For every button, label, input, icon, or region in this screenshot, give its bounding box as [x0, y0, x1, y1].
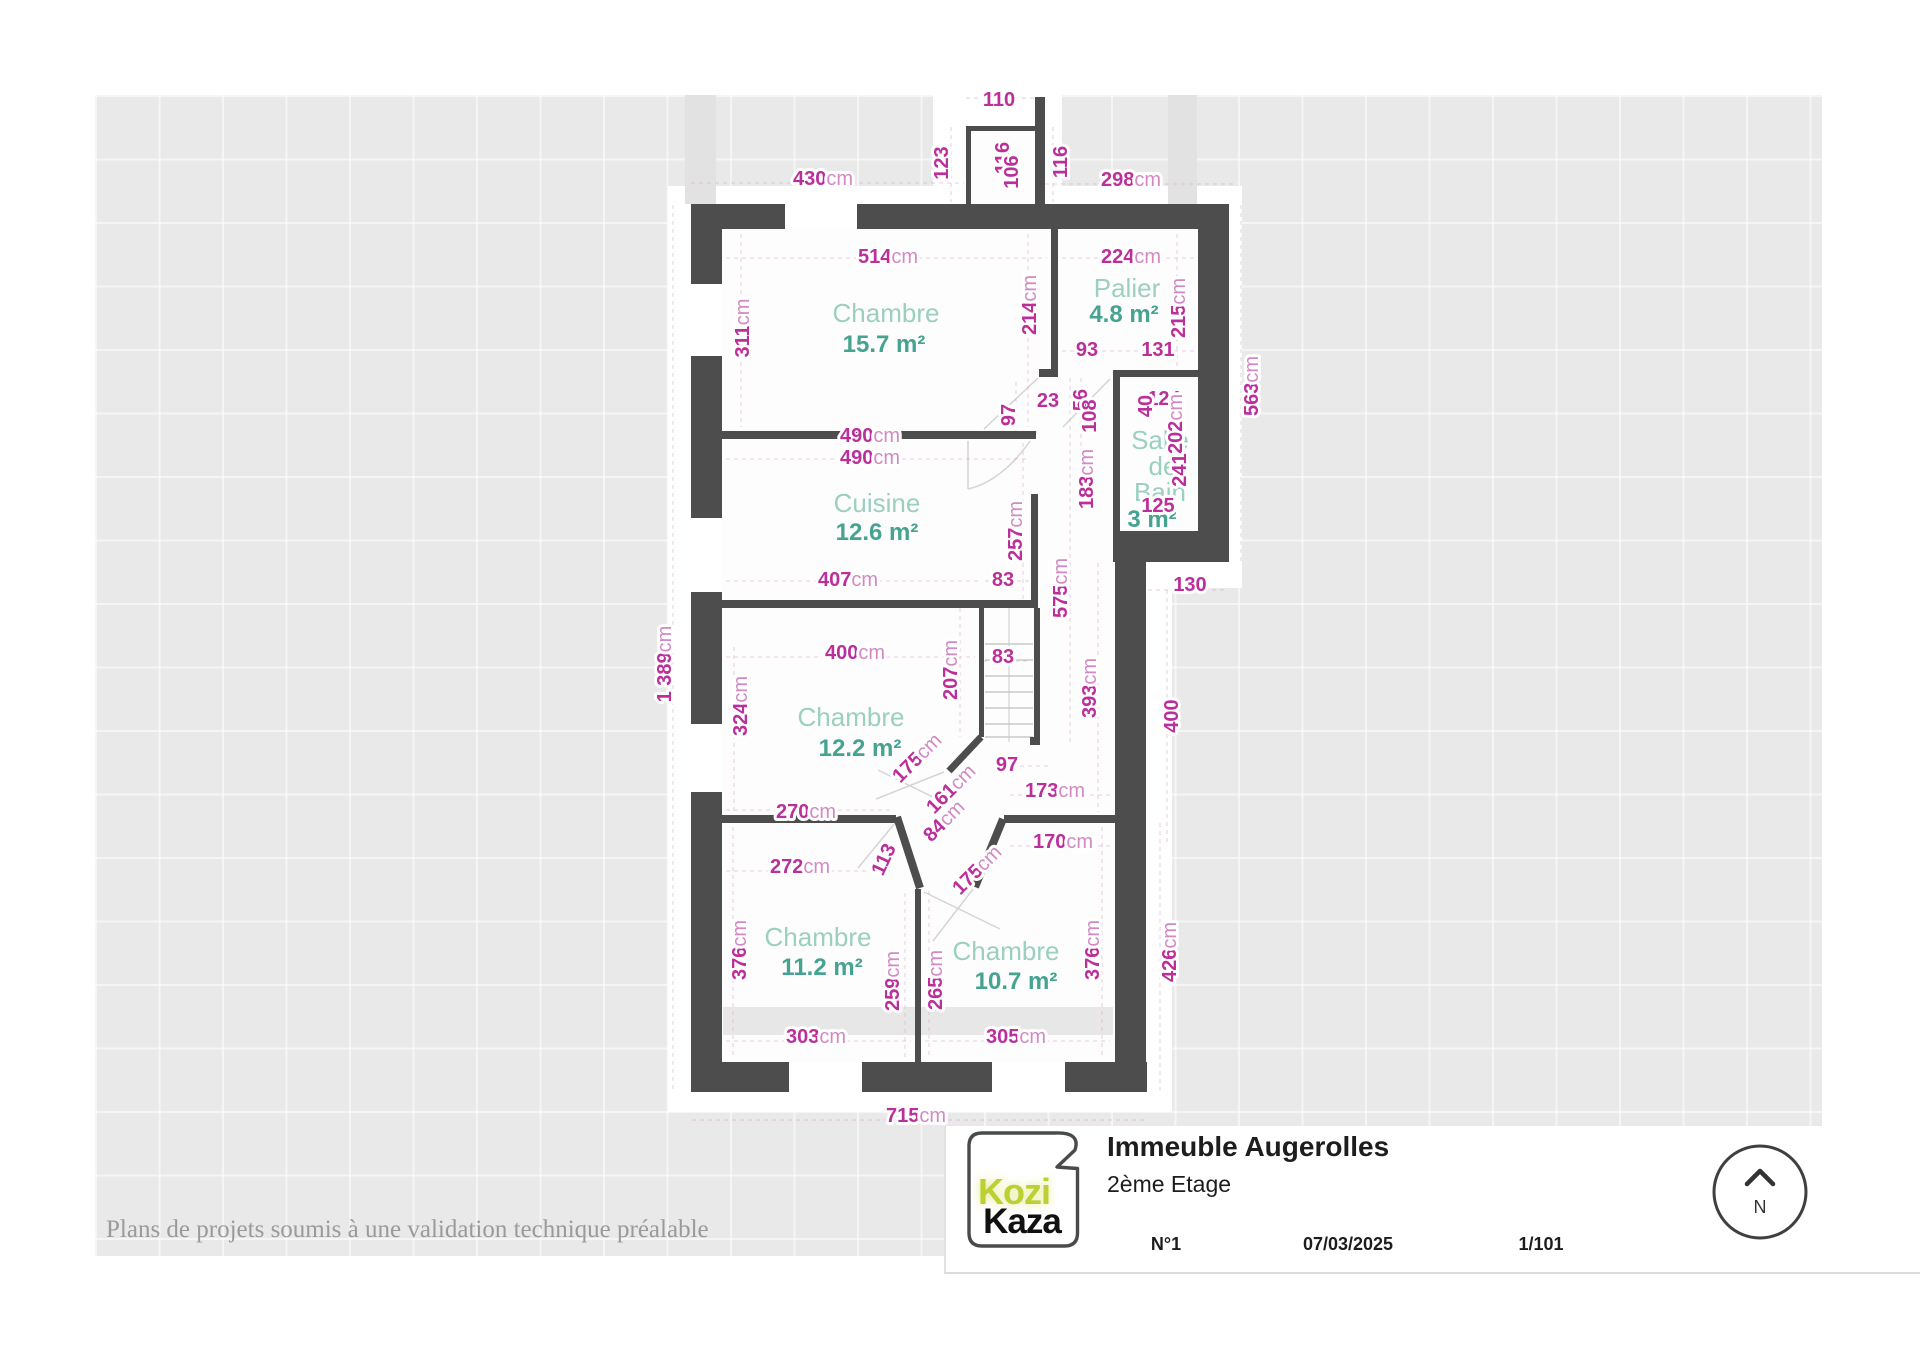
svg-text:Immeuble Augerolles: Immeuble Augerolles: [1107, 1131, 1389, 1162]
svg-text:N: N: [1754, 1197, 1767, 1217]
svg-text:Kaza: Kaza: [983, 1202, 1062, 1241]
svg-text:1/101: 1/101: [1518, 1234, 1563, 1254]
svg-text:07/03/2025: 07/03/2025: [1303, 1234, 1393, 1254]
svg-text:N°1: N°1: [1151, 1234, 1181, 1254]
svg-text:2ème Etage: 2ème Etage: [1107, 1171, 1231, 1197]
